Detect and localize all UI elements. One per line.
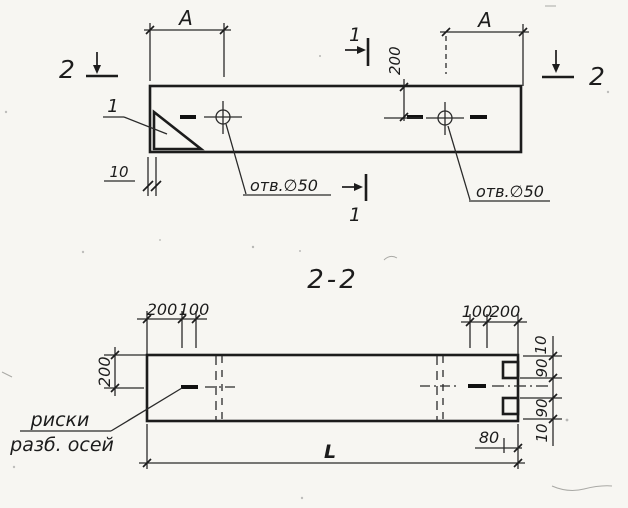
callout-1-leader: [124, 117, 167, 134]
marker-1-top-label: 1: [349, 24, 361, 46]
dims-top-left: 200 100: [137, 300, 209, 354]
noise-dot: [319, 55, 321, 57]
dim-a-right: A: [440, 8, 529, 86]
plan-beam-outline: [150, 86, 521, 152]
noise-dot: [301, 497, 303, 499]
noise-squiggle: [552, 486, 612, 491]
dim-100-right-label: 100: [462, 302, 493, 321]
dims-top-right: 100 200: [461, 302, 527, 354]
noise-squiggle: [384, 256, 397, 260]
axes-note-line1: риски: [30, 409, 90, 431]
marker-2-left-arrowhead-icon: [93, 65, 101, 74]
notch-lower: [503, 398, 518, 414]
dim-200-right-label: 200: [490, 302, 521, 321]
dim-left-height-label: 200: [95, 356, 114, 387]
scan-noise: [2, 6, 612, 499]
noise-dot: [5, 111, 7, 113]
section-marker-2-right: 2: [542, 50, 605, 91]
dim-right-10b-label: 10: [533, 423, 551, 442]
hole-label-right-leader: [448, 126, 470, 200]
dim-200-plan: 200: [384, 46, 422, 121]
dim-200-left-label: 200: [147, 300, 178, 319]
dim-a-left: A: [144, 6, 231, 81]
section-marker-1-top: 1: [345, 24, 368, 66]
section-marker-1-bottom: 1: [342, 174, 366, 226]
hole-label-left-leader: [226, 124, 246, 194]
dim-200-label: 200: [386, 46, 404, 75]
marker-1-bottom-arrowhead-icon: [354, 183, 363, 191]
dim-80: 80: [475, 428, 522, 453]
axes-note-line2: разб. осей: [9, 434, 114, 456]
plan-view: 1 A: [59, 6, 605, 226]
marker-1-top-arrowhead-icon: [357, 46, 366, 54]
dims-right-chain: 10 90 90 10: [520, 335, 562, 446]
noise-dot: [566, 419, 569, 422]
dim-a-right-label: A: [476, 8, 492, 32]
section-marker-2-left: 2: [59, 52, 118, 84]
marker-1-bottom-label: 1: [349, 204, 361, 226]
dim-length: L: [139, 424, 525, 469]
noise-dot: [13, 466, 15, 468]
noise-dot: [82, 251, 84, 253]
dim-10-plan: 10: [104, 157, 161, 196]
dim-left-height: 200: [95, 347, 146, 396]
hole-label-left-text: отв.∅50: [250, 176, 318, 195]
noise-dot: [607, 91, 609, 93]
dim-right-90a-label: 90: [533, 358, 551, 377]
noise-dash: [2, 372, 12, 377]
blueprint-sheet: 1 A: [0, 0, 628, 508]
dim-10-label: 10: [109, 163, 128, 181]
hole-left: [180, 101, 242, 134]
dim-80-label: 80: [479, 428, 499, 447]
hole-label-left: отв.∅50: [226, 124, 331, 195]
hole-label-right: отв.∅50: [448, 126, 550, 201]
dim-length-label: L: [324, 441, 336, 463]
technical-drawing: 1 A: [0, 0, 628, 508]
noise-dot: [159, 239, 161, 241]
callout-1-label: 1: [107, 96, 118, 117]
marker-2-right-label: 2: [589, 62, 605, 91]
hidden-hole-lines: [216, 356, 443, 420]
marker-2-left-label: 2: [59, 55, 75, 84]
section-title: 2-2: [307, 265, 358, 295]
dim-right-10a-label: 10: [532, 335, 550, 354]
dim-a-left-label: A: [177, 6, 193, 30]
center-axis: [181, 386, 550, 387]
dim-right-90b-label: 90: [533, 398, 551, 417]
dim-100-left-label: 100: [179, 300, 210, 319]
marker-2-right-arrowhead-icon: [552, 64, 560, 73]
noise-dot: [299, 250, 301, 252]
notch-upper: [503, 362, 518, 378]
section-view: 2-2 200: [9, 265, 562, 469]
section-beam-outline: [147, 355, 518, 421]
noise-dot: [252, 246, 254, 248]
hole-label-right-text: отв.∅50: [476, 182, 544, 201]
